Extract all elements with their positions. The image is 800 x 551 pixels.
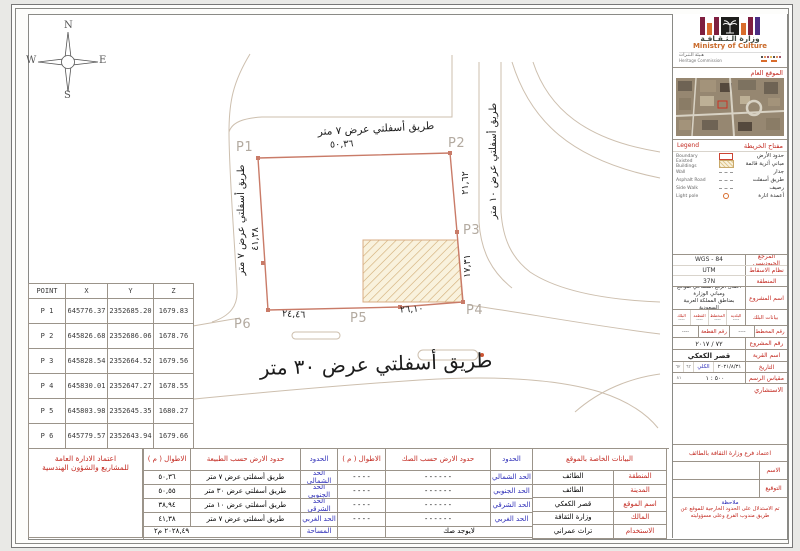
length-value: ٤١,٣٨ (144, 513, 191, 527)
lengths-header: الاطوال ( م ) (144, 449, 191, 471)
length-value: ٣٨,٩٤ (144, 499, 191, 513)
scale-row: ٨١ ٥٠٠ : ١ مقياس الرسم (673, 373, 787, 384)
point-label-p3: P3 (463, 223, 480, 238)
deed-desc-dash: - - - - - - (386, 513, 491, 527)
coord-cell: 1679.66 (154, 424, 194, 449)
bound-label-east: الحد الشرقي (301, 499, 338, 513)
bound-label-west: الحد الغربي (301, 513, 338, 527)
site-city-value: الطائف (533, 485, 614, 499)
coord-cell: P 1 (29, 299, 66, 324)
title-block-sidebar: وزارة الـثـقـافـة Ministry of Culture هـ… (672, 14, 787, 538)
bound-label-east: الحد الشرقي (491, 499, 533, 513)
parcel-no-label: رقم القطعة (698, 326, 729, 337)
point-label-p1: P1 (236, 140, 253, 155)
deed-length-dash: - - - - (338, 471, 386, 485)
dimension-bottom-right: ٢٦,١٠ (400, 303, 424, 315)
coord-cell: 2352645.35 (108, 399, 154, 424)
coord-cell: 645776.37 (66, 299, 108, 324)
projection-label: نظام الاسقاط (745, 266, 787, 276)
site-use-value: تراث عمراني (533, 525, 614, 539)
note-text: تم الاستدلال على الحدود الخارجية للموقع … (676, 506, 784, 520)
project-number-value: ٧٢ / ٢٠١٧ (673, 338, 745, 349)
general-location-label: الموقع العام (673, 68, 787, 77)
project-number-row: ٧٢ / ٢٠١٧ رقم المشروع (673, 338, 787, 350)
legend-title-ar: مفتاح الخريطة (744, 142, 783, 150)
dimension-left: ٤١,٣٨ (250, 224, 261, 254)
dimension-right-lower: ١٧,٣١ (462, 251, 473, 281)
legend-row-light-pole: Light pole أعمدة انارة (673, 192, 787, 200)
site-region-label: المنطقة (614, 471, 667, 485)
coord-header-y: Y (108, 284, 154, 299)
coord-cell: 1678.76 (154, 324, 194, 349)
deed-boundaries-header: حدود الارض حسب الصك (386, 449, 491, 471)
dimension-top: ٥٠,٣٦ (330, 138, 354, 150)
heritage-name-english: Heritage Commission (679, 59, 722, 63)
deed-desc-dash: - - - - - - (386, 471, 491, 485)
compass-rose-icon (38, 32, 98, 92)
coord-cell: 645830.01 (66, 374, 108, 399)
point-label-p6: P6 (234, 317, 251, 332)
block-cell-value: ---- (733, 318, 740, 323)
wall-symbol-icon (719, 172, 733, 173)
block-data-label: بيانات البلك (745, 310, 785, 325)
project-name-label: اسم المشروع (745, 287, 787, 310)
light-pole-symbol-icon (723, 193, 729, 199)
project-name-line1: أعمال الرفع المساحي لمواقع ومباني الوزار… (673, 287, 745, 298)
length-value: ٥٠,٣٦ (144, 471, 191, 485)
plan-parcel-row: ---- رقم القطعة ---- رقم المخطط (673, 326, 787, 338)
coord-cell: 2352664.52 (108, 349, 154, 374)
projection-value: UTM (673, 266, 745, 276)
area-value: ٢٠٢٨,٤٩ م٢ (144, 527, 301, 538)
coord-cell: P 4 (29, 374, 66, 399)
sidewalk-symbol-icon (719, 188, 733, 189)
branch-signature-label: التوقيع (759, 480, 787, 497)
point-label-p5: P5 (350, 311, 367, 326)
branch-name-label: الاسم (759, 462, 787, 479)
coord-cell: 645779.57 (66, 424, 108, 449)
boundary-desc: طريق أسفلتي عرض ٧ متر (191, 513, 301, 527)
ministry-logo-box: وزارة الـثـقـافـة Ministry of Culture هـ… (673, 14, 787, 68)
project-number-label: رقم المشروع (745, 338, 787, 349)
ga-approval-title-line1: اعتماد الادارة العامة (29, 454, 142, 463)
boundary-desc: طريق أسفلتي عرض ٧ متر (191, 471, 301, 485)
site-info-header: البيانات الخاصة بالموقع (533, 449, 667, 471)
coord-cell: 2352686.06 (108, 324, 154, 349)
point-label-p2: P2 (448, 136, 465, 151)
coord-header-point: POINT (29, 284, 66, 299)
coord-header-z: Z (154, 284, 194, 299)
deed-length-dash: - - - - (338, 513, 386, 527)
deed-boundaries-table: الاطوال ( م ) حدود الارض حسب الصك الحدود… (337, 448, 533, 539)
zone-label: المنطقة (745, 276, 787, 287)
block-data-row: البلك ---- القطعة ---- المخطط ---- البلد… (673, 310, 787, 326)
bound-label-north: الحد الشمالي (301, 471, 338, 485)
consultant-box: الاستشاري (673, 384, 787, 445)
branch-signature-field (673, 480, 759, 497)
date-row: ٦٢ ٦٣ الكلي ٢٠٢١/٨/٣١ التاريخ (673, 362, 787, 373)
zone-value: 37N (673, 276, 745, 287)
block-cell-value: ---- (696, 318, 703, 323)
branch-approval-title: اعتماد فرع وزارة الثقافة بالطائف (673, 445, 787, 462)
block-cell-value: ---- (678, 318, 685, 323)
village-name-value: قصر الكعكي (673, 350, 745, 361)
heritage-dots-icon (761, 56, 781, 62)
survey-sheet: { "colors":{"label_red":"#c32a21","label… (0, 0, 800, 551)
road-label-right: طريق أسفلتي عرض ١٠ متر (488, 85, 499, 237)
plan-no-label: رقم المخطط (754, 326, 785, 337)
deed-length-dash: - - - - (338, 485, 386, 499)
coord-cell: 2352685.20 (108, 299, 154, 324)
village-name-row: قصر الكعكي اسم القرية (673, 350, 787, 362)
plan-no-value: ---- (729, 326, 754, 337)
coord-cell: 1678.55 (154, 374, 194, 399)
natural-boundaries-table: الاطوال ( م ) حدود الارض حسب الطبيعة الح… (143, 448, 338, 539)
coord-cell: 645826.68 (66, 324, 108, 349)
site-owner-value: وزارة الثقافة (533, 512, 614, 526)
coord-cell: 645828.54 (66, 349, 108, 374)
compass-w-label: W (26, 55, 36, 66)
ga-approval-title-line2: للمشاريع والشؤون الهندسية (29, 463, 142, 472)
point-label-p4: P4 (466, 303, 483, 318)
ga-approval-box: اعتماد الادارة العامة للمشاريع والشؤون ا… (28, 448, 143, 538)
length-value: ٥٠,٥٥ (144, 485, 191, 499)
site-city-label: المدينة (614, 485, 667, 499)
coord-cell: P 3 (29, 349, 66, 374)
date-extra-cell: ٦٣ (683, 362, 693, 372)
heritage-building-hatch (363, 240, 463, 302)
block-cell-value: ---- (714, 318, 721, 323)
coord-cell: P 5 (29, 399, 66, 424)
legend-row-sidewalk: Side Walk رصيف (673, 184, 787, 192)
boundary-desc: طريق أسفلتي عرض ٣٠ متر (191, 485, 301, 499)
geodetic-box: WGS - 84 المرجع الجيوديسي UTM نظام الاسق… (673, 255, 787, 287)
site-name-value: قصر الكعكي (533, 498, 614, 512)
bound-label-north: الحد الشمالي (491, 471, 533, 485)
consultant-label: الاستشاري (673, 384, 787, 396)
ministry-name-english: Ministry of Culture (673, 43, 787, 51)
area-label: المساحة (301, 527, 338, 538)
legend-box: Legend مفتاح الخريطة Boundary حدود الأرض… (673, 140, 787, 255)
deed-length-dash: - - - - (338, 499, 386, 513)
deed-desc-dash: - - - - - - (386, 499, 491, 513)
lengths-header: الاطوال ( م ) (338, 449, 386, 471)
village-name-label: اسم القرية (745, 350, 787, 361)
coordinate-table: POINT X Y Z P 1645776.372352685.201679.8… (28, 283, 194, 449)
buildings-symbol-icon (719, 160, 734, 168)
general-location-box: الموقع العام (673, 68, 787, 140)
bound-label-west: الحد الغربي (491, 513, 533, 527)
legend-row-buildings: Existed Buildings مباني أثرية قائمة (673, 160, 787, 168)
compass-e-label: E (99, 55, 106, 66)
project-name-line2: بمناطق المملكة العربية السعودية (673, 298, 745, 309)
deed-desc-dash: - - - - - - (386, 485, 491, 499)
datum-value: WGS - 84 (673, 255, 745, 265)
date-value: ٢٠٢١/٨/٣١ (713, 362, 745, 372)
road-median-island (292, 332, 340, 339)
scale-side-cell: ٨١ (673, 373, 685, 383)
coord-cell: 1679.83 (154, 299, 194, 324)
compass-n-label: N (64, 20, 73, 31)
site-use-label: الاستخدام (614, 525, 667, 539)
parcel-no-value: ---- (673, 326, 698, 337)
deed-empty-cell (338, 527, 386, 538)
no-deed-note: لايوجد صك (386, 527, 533, 538)
boundary-symbol-icon (719, 153, 733, 160)
site-owner-label: المالك (614, 512, 667, 526)
legend-row-wall: Wall جدار (673, 168, 787, 176)
project-name-row: أعمال الرفع المساحي لمواقع ومباني الوزار… (673, 287, 787, 310)
date-label: التاريخ (745, 362, 787, 372)
bounds-header: الحدود (301, 449, 338, 471)
site-name-label: اسم الموقع (614, 498, 667, 512)
coord-cell: P 6 (29, 424, 66, 449)
bound-label-south: الحد الجنوبي (301, 485, 338, 499)
road-label-left: طريق أسفلتي عرض ٧ متر (236, 150, 247, 290)
site-info-table: البيانات الخاصة بالموقع الطائف المنطقة ا… (532, 448, 669, 539)
coord-cell: 2352643.94 (108, 424, 154, 449)
compass-s-label: S (64, 90, 71, 101)
palm-tree-icon (721, 17, 739, 35)
branch-name-field (673, 462, 759, 479)
asphalt-road-symbol-icon (719, 180, 733, 181)
coord-cell: 1679.56 (154, 349, 194, 374)
date-mid-cell: الكلي (693, 362, 713, 372)
coord-cell: 2352647.27 (108, 374, 154, 399)
boundary-desc: طريق أسفلتي عرض ١٠ متر (191, 499, 301, 513)
scale-value: ٥٠٠ : ١ (685, 373, 745, 383)
scale-label: مقياس الرسم (745, 373, 787, 383)
ministry-logo-icon (673, 17, 787, 35)
natural-boundaries-header: حدود الارض حسب الطبيعة (191, 449, 301, 471)
date-extra-cell: ٦٢ (673, 362, 683, 372)
legend-row-asphalt-road: Asphalt Road طريق أسفلت (673, 176, 787, 184)
satellite-map-image (676, 78, 784, 136)
site-region-value: الطائف (533, 471, 614, 485)
coord-cell: P 2 (29, 324, 66, 349)
branch-approval-box: اعتماد فرع وزارة الثقافة بالطائف الاسم ا… (673, 445, 787, 538)
dimension-right-upper: ٢١,٦٢ (460, 168, 471, 198)
datum-label: المرجع الجيوديسي (745, 255, 787, 265)
coord-cell: 1680.27 (154, 399, 194, 424)
bound-label-south: الحد الجنوبي (491, 485, 533, 499)
coord-cell: 645803.98 (66, 399, 108, 424)
bounds-header: الحدود (491, 449, 533, 471)
dimension-bottom-left: ٢٤,٤٦ (282, 308, 306, 320)
legend-title-en: Legend (677, 142, 699, 150)
coord-header-x: X (66, 284, 108, 299)
